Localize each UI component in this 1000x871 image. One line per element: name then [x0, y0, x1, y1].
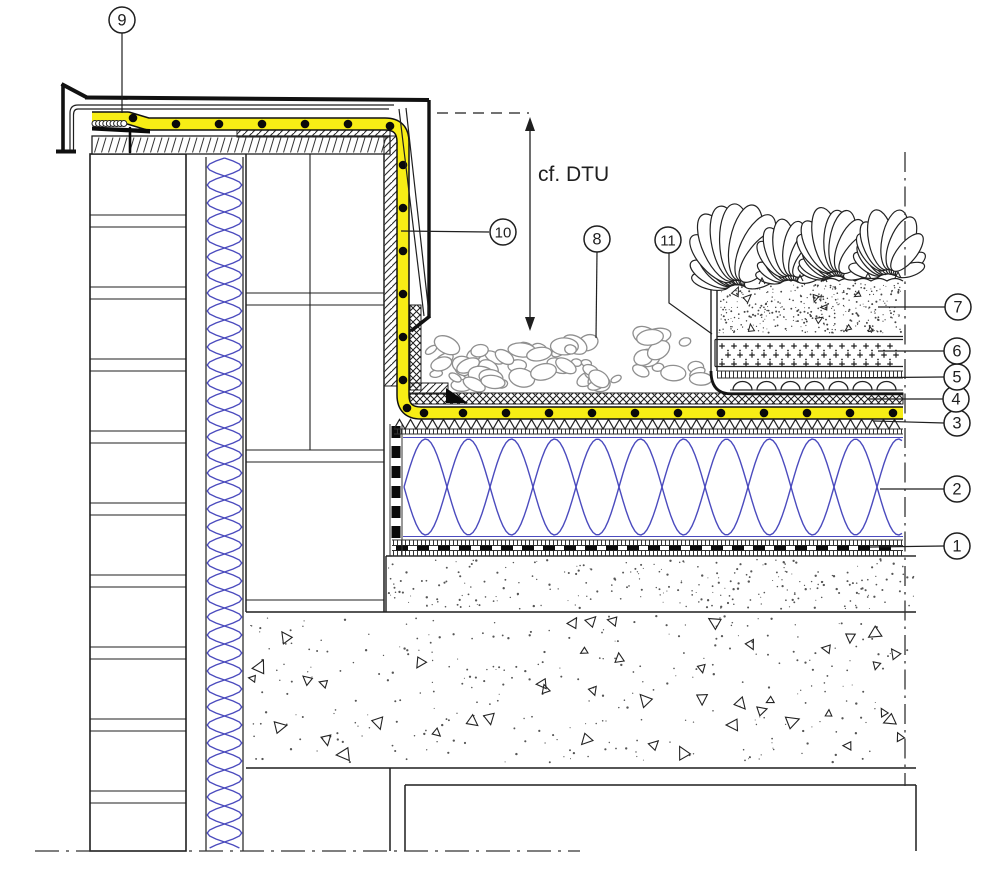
callout-6: 6 [878, 338, 970, 364]
plants [683, 202, 930, 294]
filter-layer [717, 371, 903, 378]
outer-masonry-leaf [90, 154, 186, 851]
green-roof-assembly [683, 202, 930, 394]
callout-number: 3 [952, 415, 961, 433]
sloped-screed [246, 556, 916, 612]
callout-number: 9 [117, 12, 126, 30]
cavity-insulation [206, 157, 243, 851]
concrete-slab [246, 614, 916, 768]
substrate-layer [711, 279, 903, 337]
roof-parapet-section-svg: cf. DTU1234567891011 [0, 0, 1000, 871]
callout-number: 1 [952, 538, 961, 556]
inner-masonry-leaf [246, 154, 384, 612]
callout-8: 8 [584, 226, 610, 338]
callout-number: 5 [952, 369, 961, 387]
dimension-cf-dtu: cf. DTU [437, 113, 609, 331]
callout-leader [596, 252, 597, 338]
callout-2: 2 [880, 476, 970, 502]
callout-number: 10 [495, 225, 512, 242]
membrane-underlayers [394, 420, 903, 435]
roof-insulation-layer [403, 438, 903, 537]
callout-7: 7 [878, 294, 971, 320]
construction-detail-drawing: cf. DTU1234567891011 [0, 0, 1000, 871]
parapet-top-course [92, 136, 390, 154]
left-wall [90, 136, 390, 851]
ceiling-lines [390, 768, 916, 851]
callout-number: 7 [953, 299, 962, 317]
callout-number: 11 [660, 233, 676, 250]
callout-number: 8 [592, 231, 601, 249]
callout-number: 6 [952, 343, 961, 361]
gravel-ballast [424, 323, 712, 395]
callout-number: 2 [952, 481, 961, 499]
drainage-filter-board [715, 340, 903, 367]
callout-number: 4 [951, 391, 960, 409]
dimension-label: cf. DTU [538, 163, 609, 186]
